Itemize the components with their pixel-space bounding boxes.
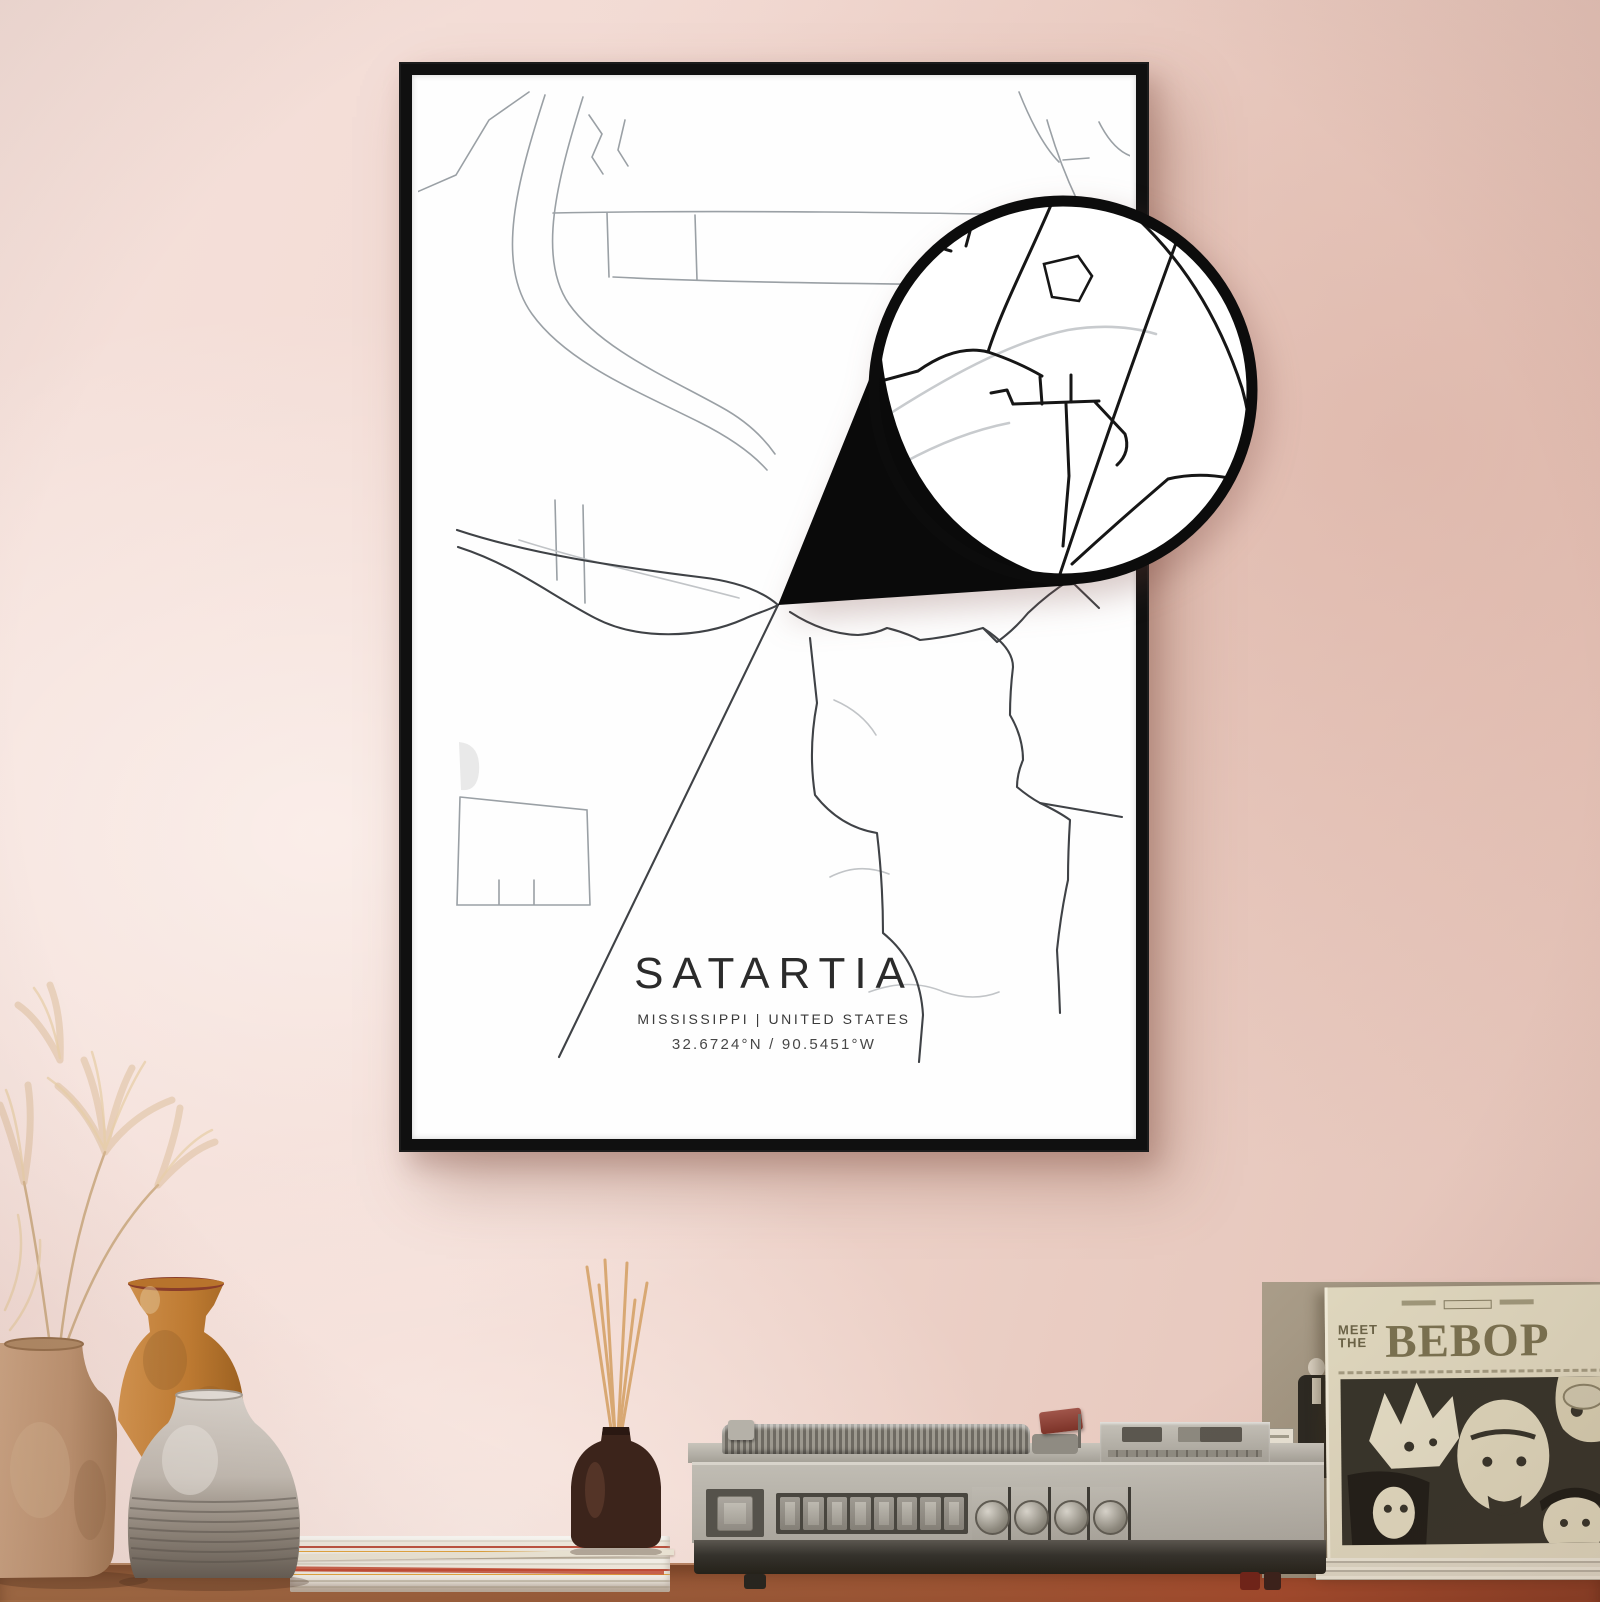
zoom-callout — [640, 120, 1300, 640]
reed-diffuser — [555, 1255, 685, 1555]
knob-section — [1090, 1487, 1126, 1543]
deck-button-group — [1178, 1427, 1242, 1442]
rotary-knob — [1054, 1500, 1089, 1535]
platter-lever — [728, 1420, 754, 1440]
preset-button — [920, 1497, 940, 1530]
player-foot — [1264, 1572, 1281, 1590]
poster-subtitle: MISSISSIPPI | UNITED STATES — [418, 1011, 1130, 1027]
knob-row — [972, 1487, 1126, 1543]
preset-button — [780, 1497, 800, 1530]
sleeve-fineprint-dashes — [1368, 1299, 1568, 1307]
sleeve-cover-photo — [1340, 1377, 1600, 1546]
deck-button-group — [1122, 1427, 1162, 1442]
panel-seam — [1128, 1487, 1131, 1543]
rotary-knob — [1093, 1500, 1128, 1535]
tonearm-head — [1039, 1408, 1083, 1435]
player-front-panel — [692, 1462, 1324, 1543]
knob-section — [1051, 1487, 1087, 1543]
sleeve-title-main: BEBOP — [1385, 1313, 1550, 1369]
deck-scale-strip — [1108, 1450, 1262, 1457]
poster-coordinates: 32.6724°N / 90.5451°W — [418, 1036, 1130, 1053]
record-player — [688, 1398, 1328, 1594]
sleeve-title-row: MEET THE BEBOP — [1338, 1313, 1550, 1369]
player-base — [694, 1540, 1326, 1574]
ceramic-vases — [0, 1268, 330, 1600]
sleeve-title-small: MEET THE — [1338, 1323, 1378, 1349]
poster-title: SATARTIA — [418, 949, 1130, 999]
map-pond — [459, 742, 479, 790]
tonearm-base — [1032, 1434, 1078, 1454]
preset-button — [944, 1497, 964, 1530]
preset-button — [850, 1497, 870, 1530]
diffuser-bottle — [571, 1427, 661, 1548]
knob-section — [1011, 1487, 1047, 1543]
bebop-album-sleeve: MEET THE BEBOP — [1325, 1285, 1600, 1574]
preset-button — [874, 1497, 894, 1530]
knob-section — [972, 1487, 1008, 1543]
player-control-deck — [1100, 1422, 1270, 1462]
sleeve-title-rule — [1338, 1369, 1600, 1375]
power-button-recess — [706, 1489, 764, 1537]
tonearm-rod — [1078, 1414, 1081, 1448]
preset-button — [827, 1497, 847, 1530]
rotary-knob — [1014, 1500, 1049, 1535]
rotary-knob — [975, 1500, 1010, 1535]
player-foot-red — [1240, 1572, 1260, 1590]
poster-text-block: SATARTIA MISSISSIPPI | UNITED STATES 32.… — [418, 949, 1130, 1053]
preset-button — [897, 1497, 917, 1530]
turntable-platter — [722, 1424, 1030, 1454]
player-foot — [744, 1574, 766, 1589]
preset-button-row — [776, 1493, 968, 1534]
preset-button — [803, 1497, 823, 1530]
sleeve-faces-art — [1340, 1377, 1600, 1546]
diffuser-reeds — [587, 1260, 647, 1435]
tan-vase — [0, 1338, 117, 1578]
records-under-sleeve — [1316, 1558, 1600, 1580]
power-button — [717, 1496, 753, 1531]
